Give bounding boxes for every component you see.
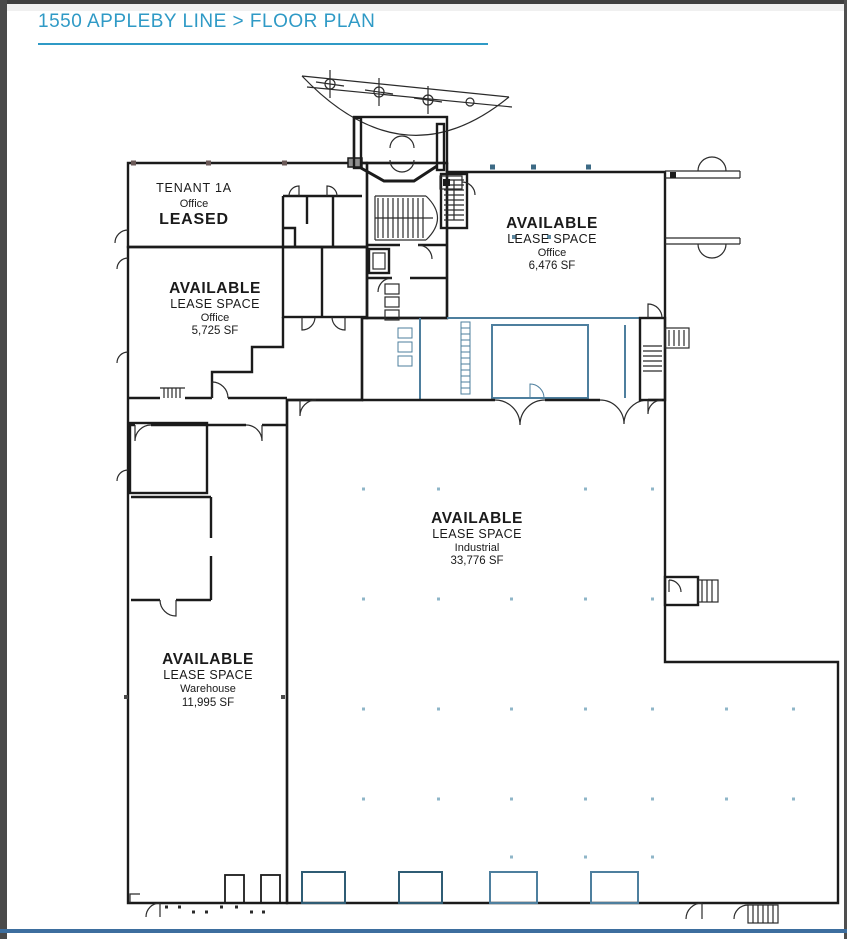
industrial-33776-area: 33,776 SF: [450, 555, 503, 567]
floor-plan-drawing: TENANT 1A Office LEASED AVAILABLE LEASE …: [0, 0, 847, 939]
east-stair-room: [640, 304, 689, 414]
gray-zone-walls: [115, 230, 287, 481]
office-6476-area: 6,476 SF: [529, 260, 576, 272]
warehouse-11995-lease-space: LEASE SPACE: [163, 668, 253, 682]
industrial-top-wall: [300, 400, 665, 425]
office-6476-label: AVAILABLE LEASE SPACE Office 6,476 SF: [506, 215, 598, 272]
entry-vestibule: [354, 118, 444, 181]
window-frame-band: [7, 4, 847, 11]
industrial-33776-lease-space: LEASE SPACE: [432, 527, 522, 541]
office-5725-status: AVAILABLE: [169, 280, 261, 297]
office-5725-lease-space: LEASE SPACE: [170, 297, 260, 311]
gray-office-inner-rooms: [212, 247, 367, 398]
available-blue-region: [287, 172, 838, 903]
tenant-1a-status: LEASED: [159, 211, 229, 228]
warehouse-11995-status: AVAILABLE: [162, 651, 254, 668]
office-6476-use: Office: [538, 247, 567, 259]
blue-corridor-walls: [398, 167, 640, 400]
tenant-1a-region: [128, 163, 367, 247]
window-frame-left: [0, 0, 7, 939]
entry-canopy: [302, 70, 512, 135]
office-5725-use: Office: [201, 312, 230, 324]
restroom-fixtures: [385, 284, 399, 320]
east-wall-stubs: [665, 157, 740, 258]
bottom-doors-and-steps: [130, 894, 778, 923]
grand-staircase: [375, 196, 438, 240]
office-6476-lease-space: LEASE SPACE: [507, 232, 597, 246]
warehouse-office-gray-region: [128, 247, 367, 903]
elevator: [369, 249, 389, 273]
floor-plan-page: 1550 APPLEBY LINE > FLOOR PLAN: [0, 0, 847, 939]
office-5725-area: 5,725 SF: [192, 325, 239, 337]
tenant-1a-use: Office: [180, 198, 209, 210]
tenant-1a-name: TENANT 1A: [156, 181, 232, 195]
warehouse-inner-room: [131, 497, 211, 616]
industrial-33776-label: AVAILABLE LEASE SPACE Industrial 33,776 …: [431, 510, 523, 567]
tenant-1a-label: TENANT 1A Office LEASED: [156, 181, 232, 228]
warehouse-11995-area: 11,995 SF: [182, 697, 234, 709]
industrial-33776-status: AVAILABLE: [431, 510, 523, 527]
warehouse-11995-label: AVAILABLE LEASE SPACE Warehouse 11,995 S…: [162, 651, 254, 709]
warehouse-11995-use: Warehouse: [180, 683, 236, 695]
office-6476-status: AVAILABLE: [506, 215, 598, 232]
entry-stairwell: [440, 174, 475, 228]
warehouse-white-room: [130, 423, 207, 493]
industrial-33776-use: Industrial: [455, 542, 500, 554]
footer-rule: [0, 929, 847, 933]
east-exit-vestibule: [665, 577, 718, 605]
office-5725-label: AVAILABLE LEASE SPACE Office 5,725 SF: [169, 280, 261, 337]
tenant-1a-inner-walls: [131, 158, 362, 247]
